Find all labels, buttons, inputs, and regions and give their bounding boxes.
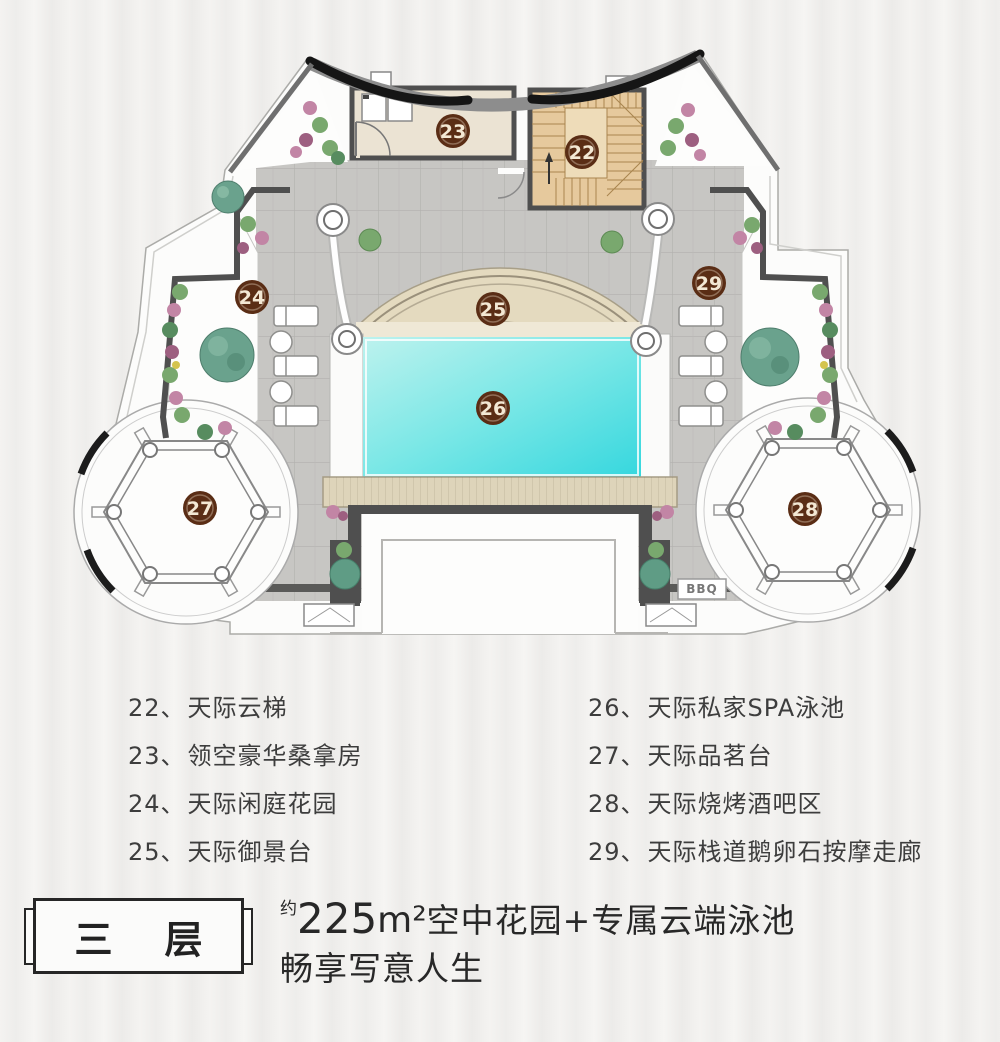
svg-text:28: 28 <box>792 499 818 521</box>
legend-column-right: 26、天际私家SPA泳池 27、天际品茗台 28、天际烧烤酒吧区 29、天际栈道… <box>588 681 923 873</box>
legend-item-26: 26、天际私家SPA泳池 <box>588 681 923 729</box>
svg-text:24: 24 <box>239 287 265 309</box>
loungers-right <box>679 306 727 426</box>
legend-name: 天际闲庭花园 <box>188 784 338 819</box>
area-unit: m² <box>377 903 427 940</box>
legend-name: 领空豪华桑拿房 <box>188 736 363 771</box>
loungers-left <box>270 306 318 426</box>
svg-text:29: 29 <box>696 273 722 295</box>
legend-num: 23、 <box>128 736 186 771</box>
svg-text:22: 22 <box>569 142 595 164</box>
legend-num: 26、 <box>588 688 646 723</box>
floor-label-char2: 层 <box>165 909 203 964</box>
pool-head-strip <box>356 322 644 339</box>
marker-22: 22 <box>565 135 599 169</box>
legend-num: 25、 <box>128 832 186 867</box>
svg-text:26: 26 <box>480 398 506 420</box>
legend-name: 天际云梯 <box>188 688 288 723</box>
marker-29: 29 <box>692 266 726 300</box>
headline-rest: 空中花园+专属云端泳池 <box>427 904 796 940</box>
legend-name: 天际品茗台 <box>648 736 773 771</box>
headline-line1: 约225m²空中花园+专属云端泳池 <box>280 888 795 940</box>
legend-num: 29、 <box>588 832 646 867</box>
legend-name: 天际栈道鹅卵石按摩走廊 <box>648 832 923 867</box>
legend-item-25: 25、天际御景台 <box>128 825 363 873</box>
floorplan-drawing: BBQ 22 23 24 25 26 27 28 29 <box>0 0 1000 668</box>
legend-num: 28、 <box>588 784 646 819</box>
legend-name: 天际私家SPA泳池 <box>648 688 846 723</box>
svg-text:BBQ: BBQ <box>686 582 718 596</box>
approx-prefix: 约 <box>280 901 297 940</box>
legend-item-28: 28、天际烧烤酒吧区 <box>588 777 923 825</box>
marker-28: 28 <box>788 492 822 526</box>
legend-item-29: 29、天际栈道鹅卵石按摩走廊 <box>588 825 923 873</box>
legend-num: 27、 <box>588 736 646 771</box>
lower-courtyard <box>304 505 696 634</box>
marker-25: 25 <box>476 292 510 326</box>
bbq-label: BBQ <box>678 579 726 599</box>
floor-badge: 三 层 <box>33 898 244 974</box>
legend-item-22: 22、天际云梯 <box>128 681 363 729</box>
pool-walkway-left <box>330 334 363 479</box>
headline-line2: 畅享写意人生 <box>280 952 795 985</box>
marker-27: 27 <box>183 491 217 525</box>
marker-26: 26 <box>476 391 510 425</box>
legend-item-27: 27、天际品茗台 <box>588 729 923 777</box>
legend-num: 22、 <box>128 688 186 723</box>
legend: 22、天际云梯 23、领空豪华桑拿房 24、天际闲庭花园 25、天际御景台 26… <box>0 681 1000 881</box>
marker-24: 24 <box>235 280 269 314</box>
legend-name: 天际烧烤酒吧区 <box>648 784 823 819</box>
svg-text:25: 25 <box>480 299 506 321</box>
marker-23: 23 <box>436 114 470 148</box>
area-number: 225 <box>297 898 377 940</box>
legend-column-left: 22、天际云梯 23、领空豪华桑拿房 24、天际闲庭花园 25、天际御景台 <box>128 681 363 873</box>
svg-text:23: 23 <box>440 121 466 143</box>
legend-item-24: 24、天际闲庭花园 <box>128 777 363 825</box>
headline: 约225m²空中花园+专属云端泳池 畅享写意人生 <box>280 888 795 985</box>
svg-text:27: 27 <box>187 498 213 520</box>
floor-label-char1: 三 <box>74 909 112 964</box>
floorplan: BBQ 22 23 24 25 26 27 28 29 <box>0 0 1000 668</box>
legend-item-23: 23、领空豪华桑拿房 <box>128 729 363 777</box>
legend-name: 天际御景台 <box>188 832 313 867</box>
pool-deck <box>323 477 677 507</box>
legend-num: 24、 <box>128 784 186 819</box>
